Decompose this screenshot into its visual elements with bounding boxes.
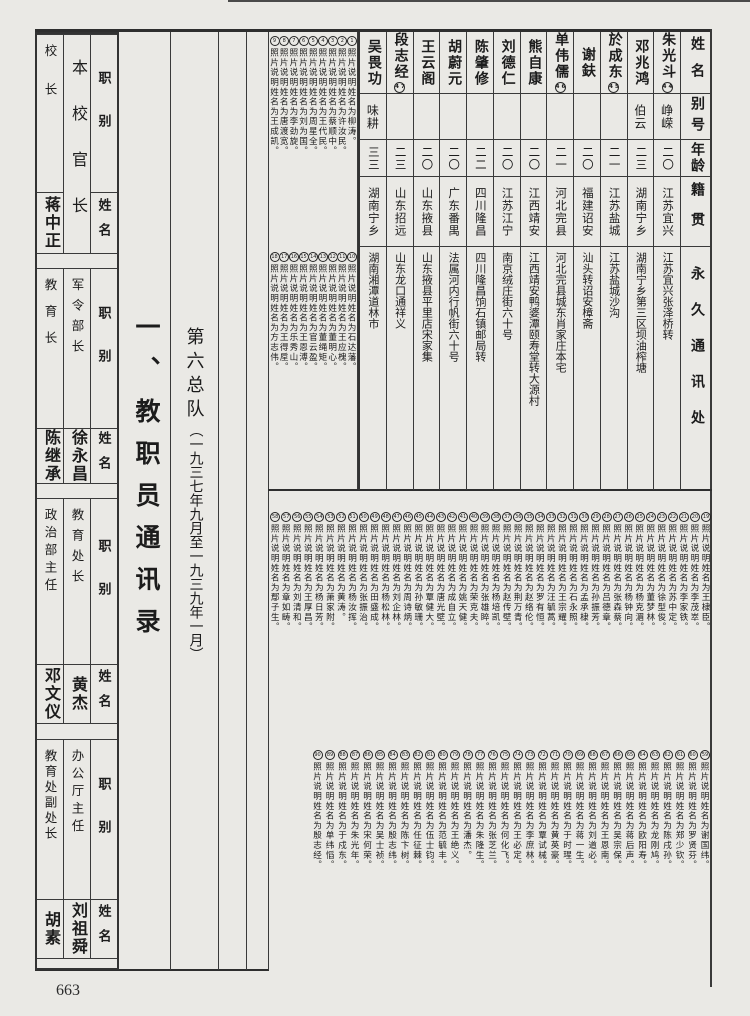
footnote-caption: 照片说明姓名为陈卞树。: [400, 762, 410, 870]
official-name: 胡素: [38, 911, 62, 947]
footnote-column: 43照片说明姓名为唐光壁。: [435, 512, 446, 664]
official-name: 邓文仪: [38, 667, 62, 721]
footnote-column: 89照片说明姓名为单纬慆。: [323, 750, 336, 898]
footnote-caption: 照片说明姓名为吕德章。: [602, 524, 612, 632]
footnote-column: 12照片说明姓名为董明心。: [328, 252, 338, 402]
header-age-cell: 年龄: [681, 140, 711, 177]
footnote-caption: 照片说明姓名为朱隆生。: [475, 762, 485, 870]
footnote-caption: 照片说明姓名为柳涛。: [347, 48, 357, 146]
official-name-cell: 黄杰: [64, 665, 90, 723]
entry-native-cell: 福建诏安: [574, 177, 600, 247]
footnote-number-badge: 49: [370, 512, 380, 522]
footnote-column: 22照片说明姓名为苏中定。: [667, 512, 678, 664]
entry-age: 二〇: [525, 146, 541, 171]
entry-age: 二〇: [579, 146, 595, 171]
footnote-number-badge: 24: [646, 512, 656, 522]
footnote-caption: 照片说明姓名为吴士祯。: [375, 762, 385, 870]
footnote-block-2: 10照片说明姓名为石达藩。11照片说明姓名为王应槐。12照片说明姓名为董明心。1…: [268, 252, 357, 402]
footnote-caption: 照片说明姓名为汪毓蒿。: [546, 524, 556, 632]
official-role-cell: 政治部主任: [37, 499, 63, 665]
footnote-caption: 照片说明姓名为李家铁。: [679, 524, 689, 632]
subtitle-unit: 第六总队: [185, 327, 205, 423]
officials-table: 校长蒋中正本校官长职别姓名教育长陈继承军令部长徐永昌职别姓名政治部主任邓文仪教育…: [35, 32, 119, 970]
footnote-number-badge: 13: [318, 252, 328, 262]
footnote-column: 55照片说明姓名为王厚昌。: [302, 512, 313, 664]
footnote-number-badge: 8: [280, 36, 290, 46]
footnote-number-badge: 10: [347, 252, 357, 262]
entry-age-cell: 二〇: [654, 140, 680, 177]
officials-section: 教育长陈继承军令部长徐永昌职别姓名: [37, 268, 117, 484]
footnote-number-badge: 55: [303, 512, 313, 522]
entry-address-cell: 山东龙口通祥义: [387, 247, 413, 490]
footnote-column: 21照片说明姓名为李家铁。: [678, 512, 689, 664]
officials-left-column: 教育长陈继承: [37, 269, 64, 483]
footnote-number-badge: 32: [557, 512, 567, 522]
footnote-column: 68照片说明姓名为刘道必。: [585, 750, 598, 898]
footnote-number-badge: 73: [525, 750, 535, 760]
footnote-column: 52照片说明姓名为黄涛。: [335, 512, 346, 664]
footnote-caption: 照片说明姓名为董绳矩。: [318, 264, 328, 372]
entry-address-cell: 湖南宁乡第三区坝油榨塘: [628, 247, 654, 490]
footnote-column: 6照片说明姓名为刘为国。: [299, 36, 309, 186]
footnote-column: 35照片说明姓名为赵络伦。: [523, 512, 534, 664]
footnote-column: 59照片说明姓名为谢国纬。: [698, 750, 711, 898]
footnote-caption: 照片说明姓名为刘为国。: [299, 48, 309, 156]
footnote-caption: 照片说明姓名为何化飞。: [500, 762, 510, 870]
directory-entry-column: 王云阁二〇山东掖县山东掖县平里店宋家集: [414, 32, 441, 490]
footnote-caption: 照片说明姓名为杨松林。: [381, 524, 391, 632]
entry-native-cell: 江苏盐城: [601, 177, 627, 247]
entry-native-place: 湖南宁乡: [365, 187, 381, 237]
footnote-caption: 照片说明姓名为龙刚鸠。: [650, 762, 660, 870]
official-role-cell: 教育长: [37, 269, 63, 429]
entry-alias-cell: [547, 94, 573, 140]
footnote-number-badge: 61: [675, 750, 685, 760]
footnote-column: 60照片说明姓名为罗贤芬。: [685, 750, 698, 898]
footnote-block-1: 1照片说明姓名为柳涛。2照片说明姓名为许汝民。3照片说明姓名为蔡顺中。4照片说明…: [268, 36, 357, 186]
footnote-caption: 照片说明姓名为刘道必。: [588, 762, 598, 870]
official-name: 陈继承: [38, 429, 62, 483]
footnote-column: 70照片说明姓名为于时瑆。: [560, 750, 573, 898]
entry-age-cell: 二〇: [574, 140, 600, 177]
footnote-caption: 照片说明姓名为殷志纬。: [388, 762, 398, 870]
officials-label-column: 职别姓名: [91, 499, 117, 723]
footnote-column: 53照片说明姓名为萧家附。: [324, 512, 335, 664]
entry-address-cell: 江苏宜兴张泽桥转: [654, 247, 680, 490]
footnote-column: 30照片说明姓名为孟承棣。: [578, 512, 589, 664]
role-label-cell: 职别: [91, 35, 117, 193]
entry-native-cell: 湖南宁乡: [360, 177, 386, 247]
directory-entry-column: 於成东45二一江苏盐城江苏盐城沙沟: [601, 32, 628, 490]
footnote-number-badge: 77: [475, 750, 485, 760]
entry-alias-cell: [467, 94, 493, 140]
footnote-column: 4照片说明姓名为王代民。: [318, 36, 328, 186]
entry-age-cell: 二二: [467, 140, 493, 177]
header-native-cell: 籍贯: [681, 177, 711, 247]
footnote-column: 54照片说明姓名为杨日芳。: [313, 512, 324, 664]
footnote-column: 65照片说明姓名为蒋后声。: [623, 750, 636, 898]
footnote-number-badge: 67: [600, 750, 610, 760]
officials-section-gap: [37, 254, 117, 268]
footnote-caption: 照片说明姓名为王得垕。: [280, 264, 290, 372]
entry-age-cell: 三三: [360, 140, 386, 177]
footnote-caption: 照片说明姓名为董梦林。: [646, 524, 656, 632]
official-role: 教育长: [41, 269, 60, 428]
footnote-number-badge: 87: [350, 750, 360, 760]
footnote-column: 13照片说明姓名为董绳矩。: [318, 252, 328, 402]
footnote-caption: 照片说明姓名为黄英豪。: [550, 762, 560, 870]
footnote-number-badge: 19: [701, 512, 711, 522]
name-label: 姓名: [95, 198, 114, 248]
officials-section-gap: [37, 724, 117, 739]
footnote-number-badge: 31: [568, 512, 578, 522]
officials-section-gap: [37, 484, 117, 498]
footnote-column: 10照片说明姓名为石达藩。: [347, 252, 357, 402]
footnote-number-badge: 38: [491, 512, 501, 522]
header-name-cell: 姓名: [681, 32, 711, 94]
entry-native-place: 江苏盐城: [606, 187, 622, 237]
footnote-number-badge: 29: [591, 512, 601, 522]
footnote-caption: 照片说明姓名为周星全。: [309, 48, 319, 156]
official-name-cell: 蒋中正: [37, 193, 63, 253]
footnote-number-badge: 46: [403, 512, 413, 522]
entry-address: 湖南宁乡第三区坝油榨塘: [634, 252, 646, 373]
entry-address-cell: 江苏盐城沙沟: [601, 247, 627, 490]
footnote-number-badge: 65: [625, 750, 635, 760]
directory-entry-column: 单伟儒46二一河北完县河北完县城东肖家庄本宅: [547, 32, 574, 490]
official-name: 刘祖舜: [65, 902, 89, 956]
entry-name: 胡蔚元: [443, 39, 463, 87]
footnote-number-badge: 11: [338, 252, 348, 262]
directory-entry-column: 段志经47二三山东招远山东龙口通祥义: [387, 32, 414, 490]
entry-address-cell: 河北完县城东肖家庄本宅: [547, 247, 573, 490]
entry-name-cell: 吴畏功: [360, 32, 386, 94]
footnote-column: 8照片说明姓名为唐渡宽。: [280, 36, 290, 186]
footnote-number-badge: 18: [270, 252, 280, 262]
footnote-caption: 照片说明姓名为孙敏珊。: [414, 524, 424, 632]
footnote-number-badge: 23: [657, 512, 667, 522]
footnote-column: 27照片说明姓名为张森蔡。: [612, 512, 623, 664]
footnote-caption: 照片说明姓名为唐光壁。: [436, 524, 446, 632]
entry-name-cell: 单伟儒46: [547, 32, 573, 94]
footnote-number-badge: 57: [281, 512, 291, 522]
entry-address: 湖南湘潭道林市: [367, 252, 379, 329]
footnote-column: 44照片说明姓名为覃健大。: [424, 512, 435, 664]
name-label: 姓名: [95, 904, 114, 954]
entry-alias-cell: [494, 94, 520, 140]
entry-native-place: 江苏江宁: [499, 187, 515, 237]
entry-native-place: 江苏宜兴: [659, 187, 675, 237]
footnote-number-badge: 25: [635, 512, 645, 522]
entry-age: 二一: [552, 146, 568, 171]
officials-group-header: 本校官长: [65, 35, 89, 253]
entry-alias: 味耕: [364, 104, 381, 130]
footnote-number-badge: 27: [613, 512, 623, 522]
footnote-number-badge: 26: [624, 512, 634, 522]
official-role: 教育处长: [68, 499, 87, 664]
footnote-column: 57照片说明姓名为章如畴。: [280, 512, 291, 664]
entry-address: 南京绒庄街六十号: [501, 252, 513, 340]
footnote-caption: 照片说明姓名为于戍东。: [338, 762, 348, 870]
footnote-column: 26照片说明姓名为杨钟向。: [623, 512, 634, 664]
footnote-caption: 照片说明姓名为李庶林。: [525, 762, 535, 870]
footnote-column: 80照片说明姓名为范毓丰。: [435, 750, 448, 898]
footnote-caption: 照片说明姓名为吴宗保。: [613, 762, 623, 870]
footnote-caption: 照片说明姓名为张雄睟。: [480, 524, 490, 632]
footnote-column: 16照片说明姓名为乐秀山。: [289, 252, 299, 402]
entry-native-cell: 山东招远: [387, 177, 413, 247]
footnote-number-badge: 70: [563, 750, 573, 760]
entry-alias-cell: [574, 94, 600, 140]
footnote-column: 5照片说明姓名为周星全。: [309, 36, 319, 186]
official-name-cell: 刘祖舜: [64, 900, 90, 958]
footnote-caption: 照片说明姓名为石达藩。: [347, 264, 357, 372]
footnote-column: 87照片说明姓名为朱光年。: [348, 750, 361, 898]
entry-address-cell: 汕头转诏安樟斋: [574, 247, 600, 490]
footnote-column: 74照片说明姓名为王必定。: [510, 750, 523, 898]
entry-native-place: 广东番禺: [445, 187, 461, 237]
footnote-column: 50照片说明姓名为张振治。: [358, 512, 369, 664]
footnote-column: 63照片说明姓名为龙刚鸠。: [648, 750, 661, 898]
entry-age-cell: 二三: [628, 140, 654, 177]
footnote-column: 79照片说明姓名为王绝义。: [448, 750, 461, 898]
entry-address-cell: 法属河内行帆街六十号: [440, 247, 466, 490]
official-role: 军令部长: [68, 269, 87, 428]
footnote-number-badge: 42: [447, 512, 457, 522]
footnote-column: 75照片说明姓名为何化飞。: [498, 750, 511, 898]
entry-name-cell: 於成东45: [601, 32, 627, 94]
entry-name-cell: 刘德仁: [494, 32, 520, 94]
footnote-number-badge: 79: [450, 750, 460, 760]
footnote-number-badge: 36: [513, 512, 523, 522]
directory-entry-column: 吴畏功味耕三三湖南宁乡湖南湘潭道林市: [360, 32, 387, 490]
footnote-column: 33照片说明姓名为汪毓蒿。: [545, 512, 556, 664]
footnote-column: 15照片说明姓名为王恩溥。: [299, 252, 309, 402]
footnote-caption: 照片说明姓名为张芝兰。: [488, 762, 498, 870]
footnote-caption: 照片说明姓名为殷志经。: [313, 762, 323, 870]
official-role-cell: 军令部长: [64, 269, 90, 429]
page-title: 一、教职员通讯录: [127, 32, 163, 970]
entry-address: 山东掖县平里店宋家集: [420, 252, 432, 362]
footnote-caption: 照片说明姓名为赵传壁。: [502, 524, 512, 632]
entry-name: 朱光斗44: [657, 32, 677, 93]
footnote-caption: 照片说明姓名为许汝民。: [338, 48, 348, 156]
page-number: 663: [56, 982, 80, 1000]
footnote-caption: 照片说明姓名为杨日芳。: [314, 524, 324, 632]
footnote-number-badge: 14: [309, 252, 319, 262]
name-label-cell: 姓名: [91, 429, 117, 483]
footnote-caption: 照片说明姓名为方志伟。: [270, 264, 280, 372]
entry-age: 二〇: [418, 146, 434, 171]
official-role: 办公厅主任: [68, 740, 87, 899]
entry-address: 山东龙口通祥义: [394, 252, 406, 329]
entry-native-place: 湖南宁乡: [632, 187, 648, 237]
footnote-number-badge: 83: [400, 750, 410, 760]
footnote-column: 49照片说明姓名为田盛成。: [369, 512, 380, 664]
footnote-number-badge: 78: [463, 750, 473, 760]
entry-native-place: 山东掖县: [418, 187, 434, 237]
entry-age: 二〇: [499, 146, 515, 171]
entry-name: 邓兆鸿: [630, 39, 650, 87]
footnote-caption: 照片说明姓名为刘清和。: [292, 524, 302, 632]
footnote-column: 58照片说明姓名为鄢子生。: [269, 512, 280, 664]
entry-alias-cell: [601, 94, 627, 140]
footnote-caption: 照片说明姓名为谢国纬。: [700, 762, 710, 870]
section-subtitle: 第六总队（一九三七年九月至一九三九年一月）: [182, 32, 208, 970]
footnote-number-badge: 47: [392, 512, 402, 522]
footnote-caption: 照片说明姓名为陈戌孙。: [663, 762, 673, 870]
footnote-number-badge: 74: [513, 750, 523, 760]
footnote-column: 81照片说明姓名为伍士钧。: [423, 750, 436, 898]
entry-name-cell: 朱光斗44: [654, 32, 680, 94]
footnote-caption: 照片说明姓名为蒋后声。: [625, 762, 635, 870]
footnote-caption: 照片说明姓名为罗有恒。: [535, 524, 545, 632]
footnote-number-badge: 80: [438, 750, 448, 760]
footnote-caption: 照片说明姓名为徐型俊。: [657, 524, 667, 632]
footnote-column: 46照片说明姓名为周诗炳。: [402, 512, 413, 664]
footnote-number-badge: 64: [638, 750, 648, 760]
footnote-column: 39照片说明姓名为张雄睟。: [479, 512, 490, 664]
footnote-caption: 照片说明姓名为杨克湄。: [635, 524, 645, 632]
footnote-number-badge: 30: [579, 512, 589, 522]
footnote-number-badge: 56: [292, 512, 302, 522]
footnote-column: 23照片说明姓名为徐型俊。: [656, 512, 667, 664]
footnote-number-badge: 41: [458, 512, 468, 522]
footnote-caption: 照片说明姓名为王应槐。: [338, 264, 348, 372]
footnote-column: 48照片说明姓名为杨松林。: [380, 512, 391, 664]
footnote-column: 32照片说明姓名为王宗耀。: [556, 512, 567, 664]
entry-address: 河北完县城东肖家庄本宅: [554, 252, 566, 373]
entry-name-cell: 邓兆鸿: [628, 32, 654, 94]
officials-section: 校长蒋中正本校官长职别姓名: [37, 34, 117, 254]
entry-age: 二三: [392, 146, 408, 171]
officials-middle-column: 办公厅主任刘祖舜: [64, 740, 91, 958]
footnote-number-badge: 88: [338, 750, 348, 760]
entry-address: 法属河内行帆街六十号: [447, 252, 459, 362]
footnote-caption: 照片说明姓名为乐秀山。: [289, 264, 299, 372]
footnote-column: 37照片说明姓名为赵传壁。: [501, 512, 512, 664]
entry-footnote-mark: 46: [555, 82, 566, 93]
footnote-number-badge: 5: [309, 36, 319, 46]
entry-alias: 峥嵘: [659, 104, 676, 130]
entry-address: 江苏宜兴张泽桥转: [661, 252, 673, 340]
footnote-column: 85照片说明姓名为吴士祯。: [373, 750, 386, 898]
footnote-caption: 照片说明姓名为王恩溥。: [299, 264, 309, 372]
header-address-cell: 永久通讯处: [681, 247, 711, 490]
entry-alias: 伯云: [632, 104, 649, 130]
footnote-caption: 照片说明姓名为赵络伦。: [524, 524, 534, 632]
footnote-number-badge: 60: [688, 750, 698, 760]
footnote-column: 72照片说明姓名为覃试械。: [535, 750, 548, 898]
footnote-caption: 照片说明姓名为唐渡宽。: [280, 48, 290, 156]
entry-age-cell: 二〇: [521, 140, 547, 177]
footnote-caption: 照片说明姓名为覃健大。: [425, 524, 435, 632]
footnote-caption: 照片说明姓名为苏中定。: [668, 524, 678, 632]
entry-name-cell: 胡蔚元: [440, 32, 466, 94]
officials-middle-column: 本校官长: [64, 35, 91, 253]
footnote-column: 77照片说明姓名为朱隆生。: [473, 750, 486, 898]
official-role: 校长: [41, 35, 60, 192]
entry-name: 段志经47: [390, 32, 410, 93]
subtitle-dates: （一九三七年九月至一九三九年一月）: [188, 423, 203, 661]
footnote-number-badge: 43: [436, 512, 446, 522]
footnote-number-badge: 48: [381, 512, 391, 522]
footnote-number-badge: 16: [289, 252, 299, 262]
footnote-number-badge: 68: [588, 750, 598, 760]
footnote-caption: 照片说明姓名为章如畴。: [281, 524, 291, 632]
entry-age: 三三: [365, 146, 381, 171]
entry-native-place: 福建诏安: [579, 187, 595, 237]
entry-name: 刘德仁: [497, 39, 517, 87]
entry-name: 吴畏功: [363, 39, 383, 87]
role-label: 职别: [95, 306, 114, 392]
directory-entry-column: 邓兆鸿伯云二三湖南宁乡湖南宁乡第三区坝油榨塘: [628, 32, 655, 490]
entry-address-cell: 江西靖安鸭婆潭颐寿堂转大源村: [521, 247, 547, 490]
footnote-column: 24照片说明姓名为董梦林。: [645, 512, 656, 664]
footnote-number-badge: 44: [425, 512, 435, 522]
directory-entry-column: 胡蔚元二〇广东番禺法属河内行帆街六十号: [440, 32, 467, 490]
footnote-number-badge: 20: [690, 512, 700, 522]
footnote-caption: 照片说明姓名为鄢子生。: [270, 524, 280, 632]
name-label-cell: 姓名: [91, 193, 117, 253]
entry-address: 汕头转诏安樟斋: [581, 252, 593, 329]
footnote-number-badge: 66: [613, 750, 623, 760]
footnote-caption: 照片说明姓名为张森蔡。: [613, 524, 623, 632]
footnote-column: 31照片说明姓名为石永照。: [567, 512, 578, 664]
entry-native-cell: 湖南宁乡: [628, 177, 654, 247]
entry-age-cell: 二〇: [414, 140, 440, 177]
entry-name: 谢鈇: [577, 47, 597, 79]
name-label-cell: 姓名: [91, 900, 117, 958]
entry-address-cell: 南京绒庄街六十号: [494, 247, 520, 490]
footnote-caption: 照片说明姓名为王绝义。: [450, 762, 460, 870]
footnote-caption: 照片说明姓名为伍士钧。: [425, 762, 435, 870]
footnote-column: 69照片说明姓名为蒋一生。: [573, 750, 586, 898]
footnote-caption: 照片说明姓名为宋何荣。: [363, 762, 373, 870]
directory-header-column: 姓名 别号 年龄 籍贯 永久通讯处: [681, 32, 711, 490]
official-role-cell: 教育处长: [64, 499, 90, 665]
official-role: 政治部主任: [41, 499, 60, 664]
footnote-number-badge: 62: [663, 750, 673, 760]
footnote-column: 34照片说明姓名为罗有恒。: [534, 512, 545, 664]
footnote-number-badge: 69: [575, 750, 585, 760]
directory-entry-column: 朱光斗44峥嵘二〇江苏宜兴江苏宜兴张泽桥转: [654, 32, 681, 490]
footnote-column: 18照片说明姓名为方志伟。: [270, 252, 280, 402]
scanned-page: 校长蒋中正本校官长职别姓名教育长陈继承军令部长徐永昌职别姓名政治部主任邓文仪教育…: [0, 0, 750, 1016]
entry-footnote-mark: 47: [394, 82, 405, 93]
entry-native-place: 河北完县: [552, 187, 568, 237]
footnote-caption: 照片说明姓名为萧家附。: [325, 524, 335, 632]
footnote-column: 36照片说明姓名为荆万青。: [512, 512, 523, 664]
officials-label-column: 职别姓名: [91, 740, 117, 958]
directory-entry-column: 刘德仁二〇江苏江宁南京绒庄街六十号: [494, 32, 521, 490]
footnote-number-badge: 35: [524, 512, 534, 522]
footnote-number-badge: 76: [488, 750, 498, 760]
footnote-number-badge: 90: [313, 750, 323, 760]
footnote-column: 76照片说明姓名为张芝兰。: [485, 750, 498, 898]
official-name-cell: 胡素: [37, 900, 63, 958]
footnote-number-badge: 59: [700, 750, 710, 760]
footnote-number-badge: 4: [318, 36, 328, 46]
entry-name: 熊自康: [523, 39, 543, 87]
footnote-caption: 照片说明姓名为于时瑆。: [563, 762, 573, 870]
entry-address-cell: 湖南湘潭道林市: [360, 247, 386, 490]
footnote-number-badge: 22: [668, 512, 678, 522]
entry-alias-cell: [387, 94, 413, 140]
footnote-column: 17照片说明姓名为王得垕。: [280, 252, 290, 402]
footnote-number-badge: 51: [348, 512, 358, 522]
footnote-caption: 照片说明姓名为周诗炳。: [403, 524, 413, 632]
